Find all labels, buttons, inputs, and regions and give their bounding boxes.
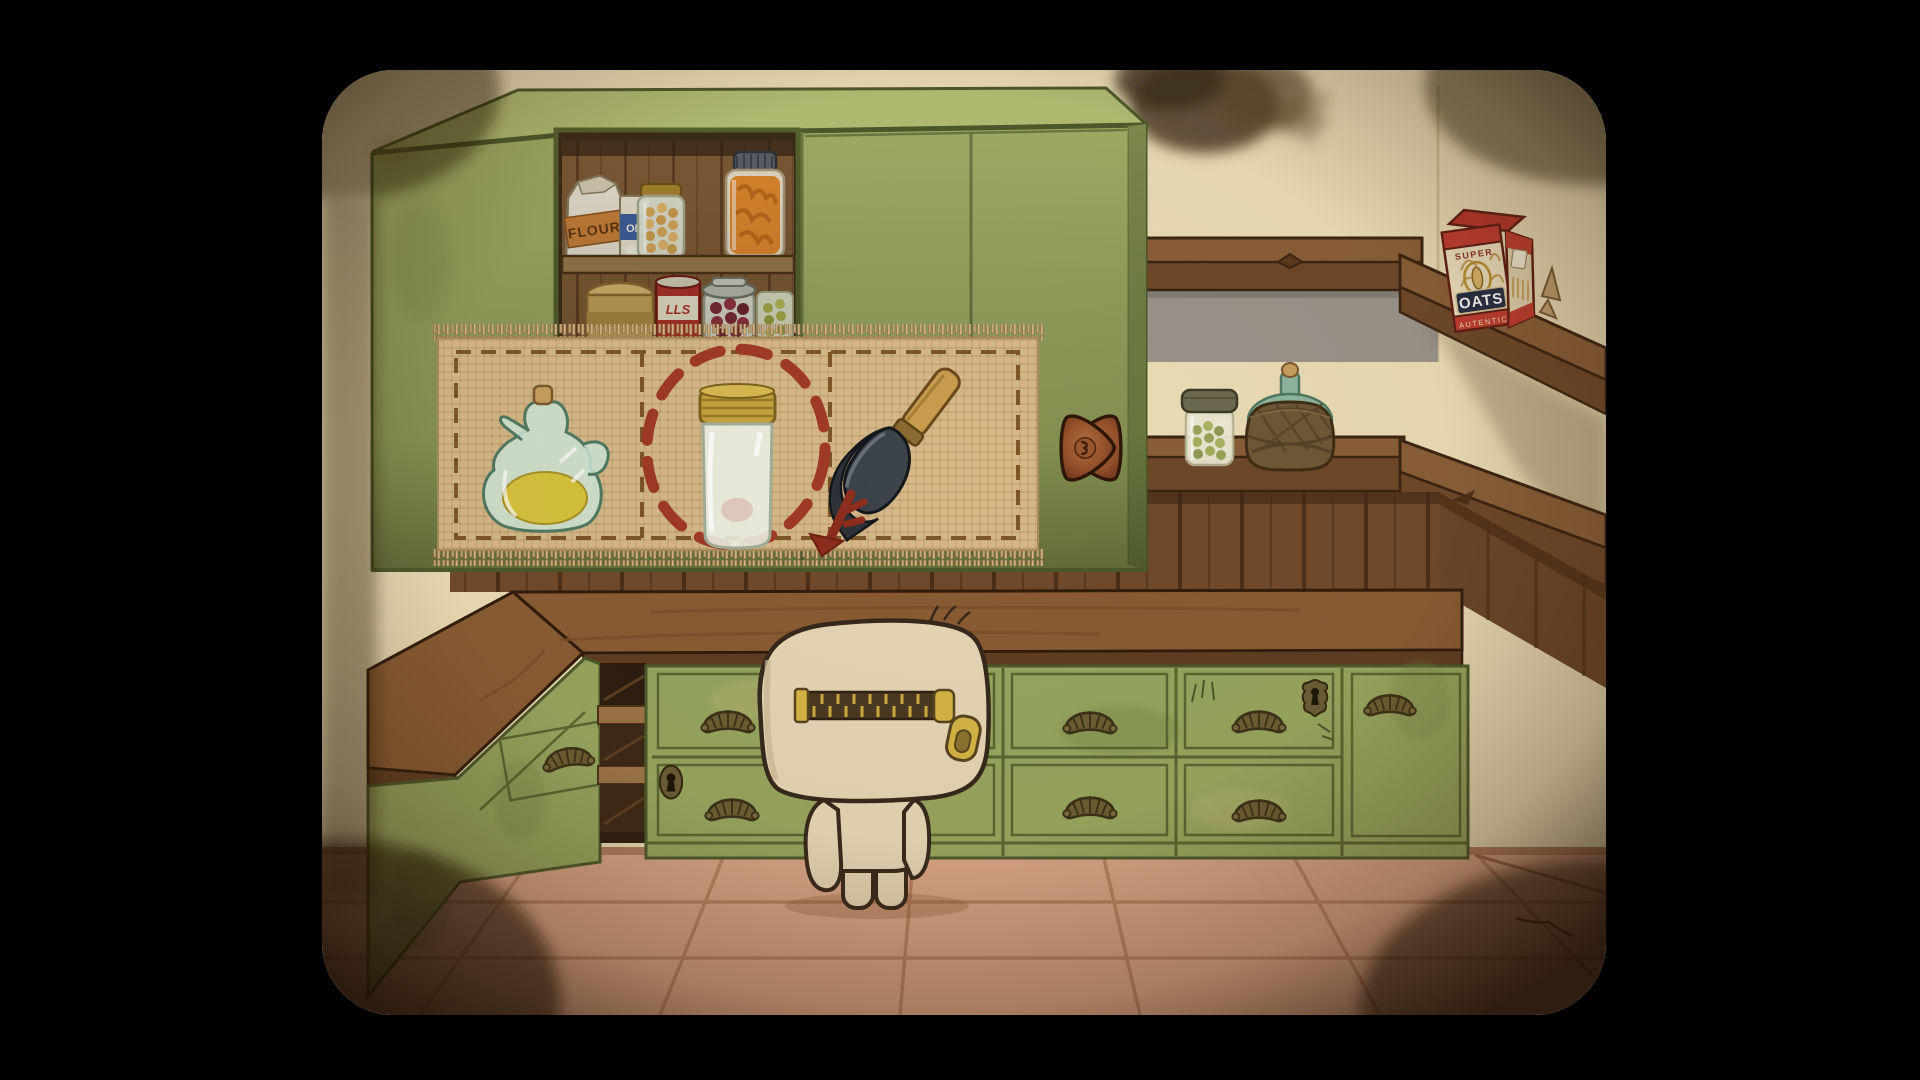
pickle-jar[interactable]: [1182, 390, 1237, 465]
gray-backsplash: [1146, 290, 1438, 362]
inventory-bar: [432, 324, 1044, 566]
game-viewport: SUPER OATS AUTENTIC: [322, 70, 1606, 1015]
game-stage: SUPER OATS AUTENTIC: [0, 0, 1920, 1080]
open-cubbies[interactable]: [598, 663, 648, 843]
upper-shelf: [1146, 238, 1422, 290]
